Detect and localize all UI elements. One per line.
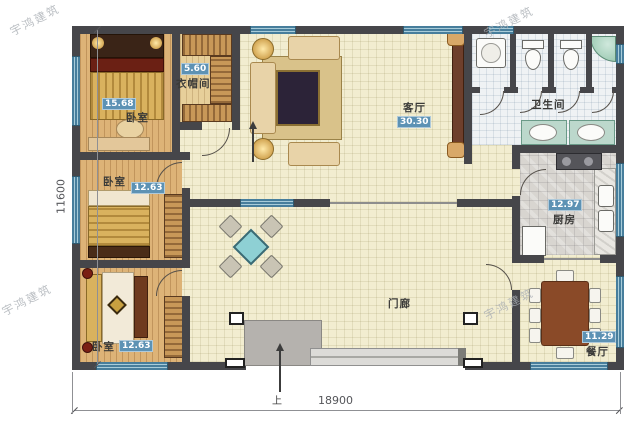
dimension-extension: [620, 372, 621, 414]
area-badge-bedroom2: 12.63: [131, 182, 165, 194]
room-label-dining: 餐厅: [586, 344, 609, 359]
toilet-icon: [560, 40, 582, 49]
sink-icon: [598, 210, 614, 232]
dimension-line-bottom: [74, 410, 620, 411]
washing-machine-door: [481, 43, 501, 63]
wall-kitchen-south-b: [600, 255, 616, 263]
wardrobe-icon: [210, 56, 232, 104]
wall-living-hall-b: [294, 199, 330, 207]
sofa-icon: [288, 36, 340, 60]
bed-lamp-icon: [92, 37, 104, 49]
wall-bedroom2-east: [182, 188, 190, 268]
bed-lamp-icon: [150, 37, 162, 49]
wall-bathroom-west: [464, 34, 472, 164]
window: [616, 163, 624, 237]
flow-arrow-line: [252, 128, 254, 162]
bed-post: [82, 268, 93, 279]
area-badge-kitchen: 12.97: [548, 199, 582, 211]
entry-up-label: 上: [272, 392, 282, 407]
room-label-living: 客厅: [403, 100, 426, 115]
chair-icon: [556, 347, 574, 359]
porch-column: [229, 312, 244, 325]
opening-living-hall: [330, 202, 457, 204]
room-label-bedroom1: 卧室: [126, 110, 149, 125]
chair-icon: [529, 308, 541, 323]
bed-pillows: [86, 274, 102, 342]
room-label-cloakroom: 衣帽间: [176, 76, 211, 91]
stove-burner: [562, 157, 571, 166]
wall-stall-front: [504, 87, 518, 93]
sofa-icon: [288, 142, 340, 166]
room-label-bedroom2: 卧室: [103, 174, 126, 189]
wall-outer-top: [72, 26, 624, 34]
wall-living-hall-c: [457, 199, 512, 207]
floor-plan-canvas: 上 15.68 卧室 5.60 衣帽间 客厅 30.30 卫生间 12.97 厨…: [0, 0, 640, 441]
wardrobe-icon: [164, 194, 184, 258]
wardrobe-icon: [182, 104, 232, 122]
area-badge-bedroom1: 15.68: [102, 98, 136, 110]
window: [72, 176, 80, 244]
area-badge-bedroom3: 12.63: [119, 340, 153, 352]
wall-cloakroom-south: [180, 122, 202, 130]
wall-stall-divider: [510, 34, 516, 87]
chair-icon: [529, 328, 541, 343]
wall-stall-divider: [548, 34, 554, 87]
window: [250, 26, 296, 34]
window: [616, 44, 624, 64]
room-label-bathroom: 卫生间: [531, 97, 566, 112]
chair-icon: [589, 308, 601, 323]
porch-column: [463, 312, 478, 325]
window-interior: [240, 199, 294, 207]
flow-arrow-icon: [249, 121, 257, 129]
area-badge-cloakroom: 5.60: [181, 63, 209, 75]
watermark-text: 宇鸿建筑: [0, 281, 55, 320]
room-label-hall: 门廊: [388, 296, 411, 311]
tv-cabinet-icon: [452, 38, 464, 150]
wall-bedroom1-east: [172, 34, 180, 160]
wall-stall-front: [542, 87, 556, 93]
armchair-icon: [252, 138, 274, 160]
dimension-label-left: 11600: [55, 174, 68, 220]
window: [72, 56, 80, 126]
room-label-bedroom3: 卧室: [92, 339, 115, 354]
wall-kitchen-west-b: [512, 196, 520, 262]
porch-column: [463, 358, 483, 368]
fridge-icon: [522, 226, 546, 256]
window: [530, 362, 608, 370]
wardrobe-icon: [182, 34, 232, 56]
wall-living-hall-a: [190, 199, 240, 207]
wall-kitchen-west-a: [512, 153, 520, 169]
basin-icon: [529, 124, 557, 141]
wall-stall-front: [472, 87, 480, 93]
wall-kitchen-south-a: [512, 255, 544, 263]
wall-kitchen-north: [512, 145, 616, 153]
wall-cloakroom-east: [232, 34, 240, 130]
room-label-kitchen: 厨房: [553, 212, 576, 227]
sink-icon: [598, 185, 614, 207]
dimension-label-bottom: 18900: [318, 394, 353, 407]
porch-column: [225, 358, 245, 368]
wall-bedroom3-east: [182, 296, 190, 362]
wall-stall-divider: [586, 34, 592, 87]
area-badge-living: 30.30: [397, 116, 431, 128]
chair-icon: [589, 288, 601, 303]
coffee-table: [276, 70, 320, 126]
dimension-line-left: [97, 30, 98, 366]
window: [616, 276, 624, 348]
entry-steps: [310, 348, 466, 366]
wardrobe-icon: [164, 296, 184, 358]
toilet-icon: [522, 40, 544, 49]
armchair-icon: [252, 38, 274, 60]
entry-arrow-line: [279, 350, 281, 392]
tv-cabinet-end: [447, 142, 465, 158]
watermark-text: 宇鸿建筑: [7, 1, 62, 40]
basin-icon: [577, 124, 605, 141]
dimension-extension: [72, 372, 73, 414]
stove-burner: [584, 157, 593, 166]
window: [96, 362, 168, 370]
window: [403, 26, 463, 34]
opening-kitchen-hatch: [544, 258, 600, 260]
bed-blanket-roll: [134, 276, 148, 338]
bed-pillows: [90, 58, 164, 72]
area-badge-dining: 11.29: [582, 331, 616, 343]
entry-arrow-icon: [276, 343, 284, 351]
